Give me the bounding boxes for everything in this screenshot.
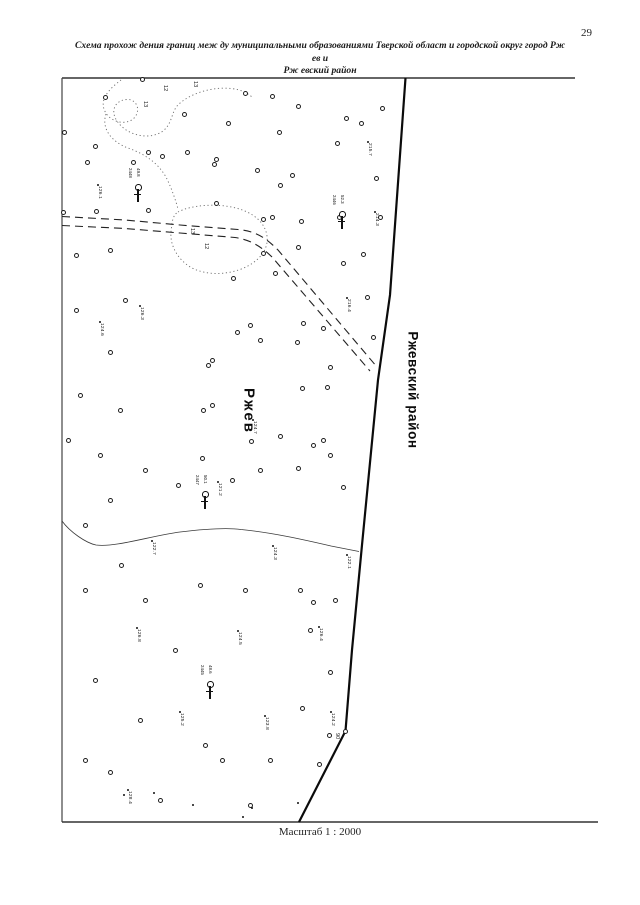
tree-symbol [103, 95, 108, 100]
dot-symbol [297, 802, 300, 805]
tree-symbol [85, 160, 90, 165]
tree-symbol [83, 523, 88, 528]
tree-symbol [98, 453, 103, 458]
tree-symbol [214, 201, 219, 206]
tree-symbol [146, 150, 151, 155]
tree-symbol [94, 209, 99, 214]
elevation-value: 122.7 [151, 542, 156, 555]
tree-symbol [268, 758, 273, 763]
tree-symbol [201, 408, 206, 413]
contour-number-value: 90 [334, 733, 340, 739]
tree-symbol [62, 130, 67, 135]
dot-symbol [242, 816, 245, 819]
tree-symbol [231, 276, 236, 281]
contour-number-value: 13 [192, 81, 198, 87]
elevation-value: 122.1 [346, 556, 351, 569]
tree-symbol [78, 393, 83, 398]
benchmark-height: 49.8 [136, 168, 141, 177]
elevation-value: 125.2 [179, 713, 184, 726]
map-marker-layer: 126.1124.6126.3216.4124.7121.2124.3122.1… [0, 0, 640, 905]
tree-symbol [198, 583, 203, 588]
benchmark-pole-icon [137, 189, 138, 202]
tree-symbol [138, 718, 143, 723]
tree-symbol [328, 453, 333, 458]
tree-symbol [311, 600, 316, 605]
tree-symbol [290, 173, 295, 178]
tree-symbol [61, 210, 66, 215]
tree-symbol [248, 323, 253, 328]
tree-symbol [321, 438, 326, 443]
tree-symbol [308, 628, 313, 633]
tree-symbol [93, 678, 98, 683]
tree-symbol [341, 485, 346, 490]
benchmark-height: 50.1 [203, 475, 208, 484]
elevation-value: 124.2 [330, 713, 335, 726]
elevation-value: 215.7 [367, 143, 372, 156]
contour-number-value: 13 [142, 101, 148, 107]
tree-symbol [235, 330, 240, 335]
tree-symbol [243, 588, 248, 593]
document-page: 29 Схема прохож дения границ меж ду муни… [0, 0, 640, 905]
tree-symbol [333, 598, 338, 603]
tree-symbol [344, 116, 349, 121]
benchmark-pole-icon [341, 216, 342, 229]
benchmark-number: 2448 [128, 168, 133, 178]
elevation-value: 121.2 [217, 483, 222, 496]
tree-symbol [278, 434, 283, 439]
map-scale-label: Масштаб 1 : 2000 [0, 826, 640, 838]
tree-symbol [296, 466, 301, 471]
tree-symbol [335, 141, 340, 146]
benchmark-tick-icon [134, 194, 141, 195]
tree-symbol [74, 308, 79, 313]
tree-symbol [200, 456, 205, 461]
tree-symbol [185, 150, 190, 155]
tree-symbol [243, 91, 248, 96]
tree-symbol [123, 298, 128, 303]
benchmark-number: 2445 [200, 665, 205, 675]
tree-symbol [359, 121, 364, 126]
elevation-value: 126.1 [97, 186, 102, 199]
tree-symbol [83, 588, 88, 593]
tree-symbol [325, 385, 330, 390]
district-label-rzhevsky-rayon: Ржевский район [406, 331, 421, 448]
tree-symbol [212, 162, 217, 167]
tree-symbol [374, 176, 379, 181]
elevation-value: 123.8 [264, 717, 269, 730]
tree-symbol [66, 438, 71, 443]
tree-symbol [258, 338, 263, 343]
elevation-value: 128.4 [127, 791, 132, 804]
tree-symbol [321, 326, 326, 331]
tree-symbol [83, 758, 88, 763]
benchmark-tick-icon [206, 691, 213, 692]
tree-symbol [298, 588, 303, 593]
tree-symbol [203, 743, 208, 748]
contour-number-value: 12 [203, 243, 209, 249]
benchmark-tick-icon [201, 501, 208, 502]
dot-symbol [153, 792, 156, 795]
tree-symbol [327, 733, 332, 738]
tree-symbol [278, 183, 283, 188]
dot-symbol [123, 794, 126, 797]
tree-symbol [108, 248, 113, 253]
benchmark-pole-icon [204, 496, 205, 509]
tree-symbol [226, 121, 231, 126]
tree-symbol [261, 217, 266, 222]
dot-symbol [251, 807, 254, 810]
tree-symbol [143, 598, 148, 603]
tree-symbol [300, 386, 305, 391]
tree-symbol [343, 729, 348, 734]
elevation-value: 214.3 [374, 213, 379, 226]
elevation-value: 126.3 [139, 307, 144, 320]
tree-symbol [119, 563, 124, 568]
tree-symbol [328, 365, 333, 370]
tree-symbol [295, 340, 300, 345]
benchmark-tick-icon [338, 221, 345, 222]
tree-symbol [255, 168, 260, 173]
tree-symbol [311, 443, 316, 448]
tree-symbol [299, 219, 304, 224]
dot-symbol [192, 804, 195, 807]
elevation-value: 124.5 [237, 632, 242, 645]
tree-symbol [230, 478, 235, 483]
tree-symbol [220, 758, 225, 763]
tree-symbol [301, 321, 306, 326]
benchmark-height: 52.3 [340, 195, 345, 204]
elevation-value: 124.6 [99, 323, 104, 336]
tree-symbol [328, 670, 333, 675]
benchmark-height: 48.6 [208, 665, 213, 674]
tree-symbol [108, 498, 113, 503]
tree-symbol [270, 94, 275, 99]
tree-symbol [296, 245, 301, 250]
tree-symbol [176, 483, 181, 488]
tree-symbol [273, 271, 278, 276]
tree-symbol [261, 251, 266, 256]
tree-symbol [341, 261, 346, 266]
benchmark-number: 2447 [195, 475, 200, 485]
elevation-value: 124.3 [272, 547, 277, 560]
tree-symbol [210, 403, 215, 408]
tree-symbol [296, 104, 301, 109]
tree-symbol [300, 706, 305, 711]
tree-symbol [361, 252, 366, 257]
tree-symbol [210, 358, 215, 363]
benchmark-pole-icon [209, 686, 210, 699]
tree-symbol [317, 762, 322, 767]
elevation-value: 126.8 [136, 629, 141, 642]
elevation-value: 126.4 [318, 628, 323, 641]
tree-symbol [74, 253, 79, 258]
contour-number-value: 13 [189, 228, 195, 234]
tree-symbol [270, 215, 275, 220]
tree-symbol [118, 408, 123, 413]
tree-symbol [206, 363, 211, 368]
tree-symbol [93, 144, 98, 149]
tree-symbol [108, 770, 113, 775]
tree-symbol [371, 335, 376, 340]
tree-symbol [143, 468, 148, 473]
tree-symbol [277, 130, 282, 135]
tree-symbol [140, 77, 145, 82]
tree-symbol [182, 112, 187, 117]
city-label-rzhev: Ржев [241, 388, 258, 434]
tree-symbol [365, 295, 370, 300]
benchmark-number: 2446 [332, 195, 337, 205]
tree-symbol [131, 160, 136, 165]
tree-symbol [173, 648, 178, 653]
tree-symbol [249, 439, 254, 444]
tree-symbol [108, 350, 113, 355]
tree-symbol [146, 208, 151, 213]
tree-symbol [258, 468, 263, 473]
tree-symbol [160, 154, 165, 159]
tree-symbol [158, 798, 163, 803]
contour-number-value: 12 [162, 85, 168, 91]
elevation-value: 216.4 [346, 299, 351, 312]
tree-symbol [380, 106, 385, 111]
